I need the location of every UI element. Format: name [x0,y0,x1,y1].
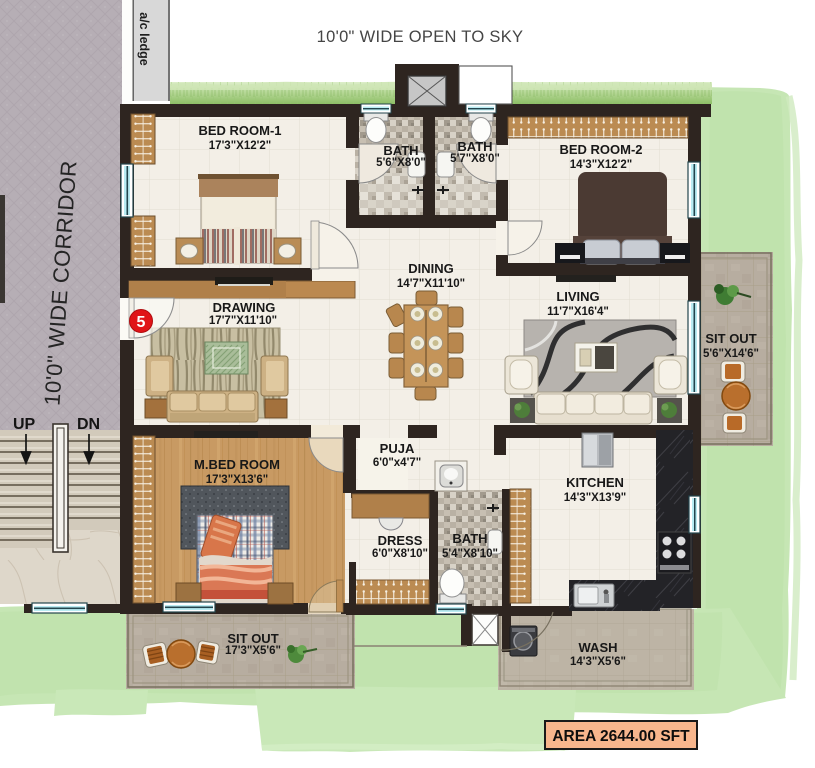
svg-text:6'0"x4'7": 6'0"x4'7" [373,457,421,469]
svg-text:14'3"X13'9": 14'3"X13'9" [564,492,626,504]
svg-text:17'3"X12'2": 17'3"X12'2" [209,140,271,152]
svg-text:BED ROOM-2: BED ROOM-2 [559,142,642,157]
svg-text:DINING: DINING [408,261,454,276]
svg-text:11'7"X16'4": 11'7"X16'4" [547,306,609,318]
svg-text:PUJA: PUJA [380,441,415,456]
svg-text:SIT OUT: SIT OUT [227,631,278,646]
svg-text:KITCHEN: KITCHEN [566,475,624,490]
svg-text:BED ROOM-1: BED ROOM-1 [198,123,281,138]
svg-text:BATH: BATH [452,531,487,546]
svg-text:a/c ledge: a/c ledge [137,12,151,66]
svg-text:14'7"X11'10": 14'7"X11'10" [397,278,465,290]
svg-text:5'4"X8'10": 5'4"X8'10" [442,548,498,560]
svg-text:WASH: WASH [579,640,618,655]
svg-text:6'0"X8'10": 6'0"X8'10" [372,548,428,560]
svg-text:UP: UP [13,416,36,433]
svg-text:5: 5 [137,314,146,331]
svg-text:AREA 2644.00 SFT: AREA 2644.00 SFT [552,728,690,745]
svg-text:M.BED ROOM: M.BED ROOM [194,457,280,472]
svg-text:14'3"X12'2": 14'3"X12'2" [570,159,632,171]
svg-text:DN: DN [77,416,100,433]
svg-text:5'7"X8'0": 5'7"X8'0" [450,153,500,165]
svg-text:17'3"X13'6": 17'3"X13'6" [206,474,268,486]
svg-text:BATH: BATH [383,143,418,158]
svg-text:SIT OUT: SIT OUT [705,331,756,346]
svg-text:14'3"X5'6": 14'3"X5'6" [570,656,626,668]
svg-text:5'6"X14'6": 5'6"X14'6" [703,348,759,360]
svg-text:17'7"X11'10": 17'7"X11'10" [209,315,277,327]
svg-text:LIVING: LIVING [556,289,599,304]
svg-text:BATH: BATH [457,139,492,154]
svg-text:DRESS: DRESS [378,533,423,548]
svg-text:10'0" WIDE OPEN TO SKY: 10'0" WIDE OPEN TO SKY [317,28,524,46]
svg-text:DRAWING: DRAWING [213,300,276,315]
svg-text:5'6"X8'0": 5'6"X8'0" [376,157,426,169]
svg-text:17'3"X5'6": 17'3"X5'6" [225,645,281,657]
